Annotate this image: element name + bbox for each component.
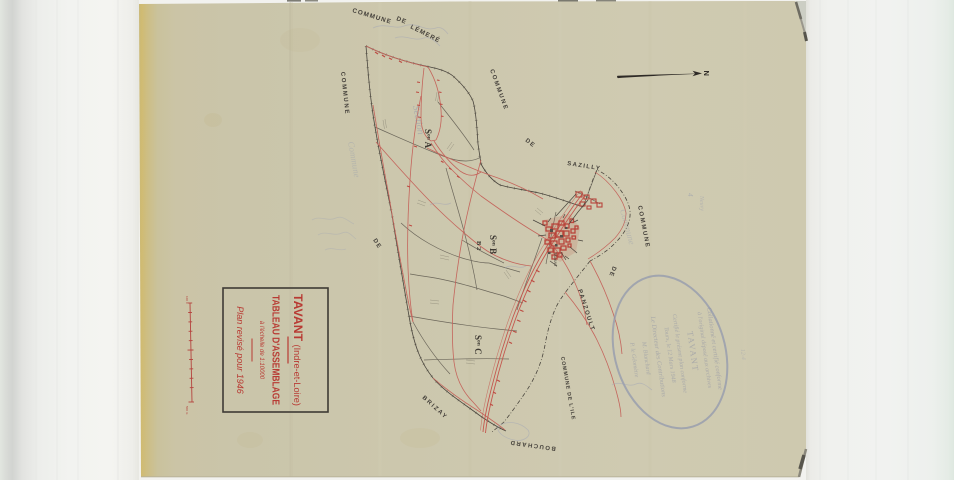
svg-text:N: N — [702, 71, 711, 76]
svg-text:12-4: 12-4 — [739, 349, 747, 361]
svg-text:4: 4 — [686, 193, 694, 197]
svg-text:TAVANT (Indre-et-Loire): TAVANT (Indre-et-Loire) — [291, 294, 305, 406]
svg-text:500 m: 500 m — [185, 406, 189, 415]
svg-text:100 0: 100 0 — [185, 296, 189, 304]
svg-text:TAVANT: TAVANT — [553, 252, 558, 267]
svg-text:Neuvy: Neuvy — [698, 195, 705, 212]
svg-text:à l'échelle de 1:10000: à l'échelle de 1:10000 — [258, 321, 264, 380]
svg-text:TABLEAU D'ASSEMBLAGE: TABLEAU D'ASSEMBLAGE — [270, 295, 281, 405]
svg-text:B 2: B 2 — [475, 241, 482, 250]
svg-text:Plan revisé pour 1946: Plan revisé pour 1946 — [235, 306, 245, 394]
